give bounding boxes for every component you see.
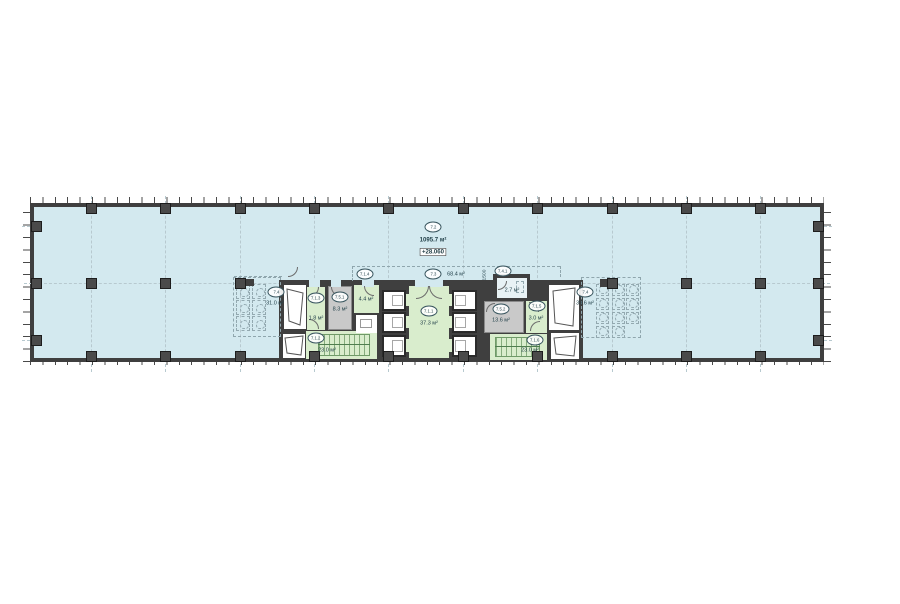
corridor-boundary [352,266,560,267]
column [607,278,618,289]
room-code-bubble-vestibule-right: 7.1.5 [529,301,546,312]
vent-shaft [549,285,579,330]
column [607,203,618,214]
elevator-door-gap [406,294,409,306]
dimension-1500: 1500 [481,269,486,280]
toilet-stall [596,326,609,338]
column [160,278,171,289]
elevator-door-gap [406,339,409,352]
elevator-shaft [452,312,477,333]
vent-shaft [284,285,306,329]
toilet-stall [252,316,266,331]
column [309,203,320,214]
door-gap [331,280,341,287]
column [755,351,766,362]
vent-shaft [283,334,305,358]
elevator-door-gap [449,294,452,306]
elevator-car [455,317,466,328]
column [383,203,394,214]
room-area-main: 1095.7 м² [420,237,447,244]
room-code-bubble-tech-right: 7.5.2 [493,304,510,315]
room-code-bubble-lobby: 7.1.1 [421,306,438,317]
room-code-bubble-414: 7.1.4 [357,269,374,280]
room-area-vestibule-right: 3.0 м² [529,315,544,321]
room-area-corridor: 68.4 м² [447,271,465,277]
toilet-stall [612,312,625,324]
toilet-stall [596,298,609,310]
column [31,278,42,289]
elevator-door-gap [406,316,409,328]
room-area-vestibule-left: 1.8 м² [309,315,324,321]
toilet-stall [612,326,625,338]
elevator-car [392,295,403,306]
room-area-stair-right: 23.0 м² [521,347,539,353]
toilet-stall [626,284,639,296]
room-code-bubble-wc-right: 7.4 [577,287,594,298]
column [755,203,766,214]
room-code-bubble-stair-left: 7.1.2 [308,333,325,344]
room-area-wc-left: 31.0 м² [266,300,284,306]
corridor-boundary [352,266,353,281]
room-code-bubble-main: 7.2 [425,222,442,233]
column [235,278,246,289]
column [31,335,42,346]
room-area-lobby: 37.3 м² [420,320,438,326]
elevator-door-gap [449,339,452,352]
vent-shaft [551,333,579,359]
elevator-shaft [452,290,477,311]
toilet-stall [252,284,266,299]
room-area-wc-accessible: 2.7 м² [505,287,520,293]
door-gap [309,280,320,287]
column [86,203,97,214]
column [813,221,824,232]
elevator-car [392,317,403,328]
room-area-stair-left: 23.0 м² [318,347,336,353]
column [532,203,543,214]
column [458,203,469,214]
column [160,203,171,214]
column [458,351,469,362]
floor-plan-canvas: 7.2 1095.7 м² +28.060 7.3 68.4 м² 7.1.4 … [0,0,900,604]
column [607,351,618,362]
room-code-bubble-vestibule-left: 7.1.3 [308,293,325,304]
room-code-bubble-wc-left: 7.4 [268,287,285,298]
column [235,351,246,362]
toilet-stall [236,300,250,315]
small-shaft [356,315,377,333]
stair-stringer-left [318,344,370,345]
toilet-stall [612,298,625,310]
room-area-tech-left: 8.3 м² [333,306,348,312]
column [755,278,766,289]
elevator-shaft [382,312,406,333]
room-code-bubble-corridor: 7.3 [425,269,442,280]
room-area-wc-right: 39.6 м² [576,300,594,306]
toilet-stall [596,312,609,324]
column [681,278,692,289]
room-code-bubble-wc-accessible: 7.4.1 [495,266,512,277]
elevator-car [455,295,466,306]
elevation-mark: +28.060 [420,248,446,256]
elevator-shaft [382,290,406,311]
column [86,351,97,362]
room-area-tech-right: 13.6 м² [492,317,510,323]
column [813,278,824,289]
column [160,351,171,362]
column [31,221,42,232]
room-code-bubble-stair-right: 7.1.6 [527,335,544,346]
column [681,203,692,214]
room-area-414: 4.4 м² [359,296,374,302]
corridor-boundary [560,266,561,277]
toilet-stall [236,316,250,331]
room-code-bubble-tech-left: 7.5.1 [332,292,349,303]
column [681,351,692,362]
column [383,351,394,362]
column [235,203,246,214]
toilet-stall [252,300,266,315]
column [86,278,97,289]
elevator-door-gap [449,316,452,328]
toilet-stall [626,312,639,324]
toilet-stall [626,298,639,310]
column [813,335,824,346]
